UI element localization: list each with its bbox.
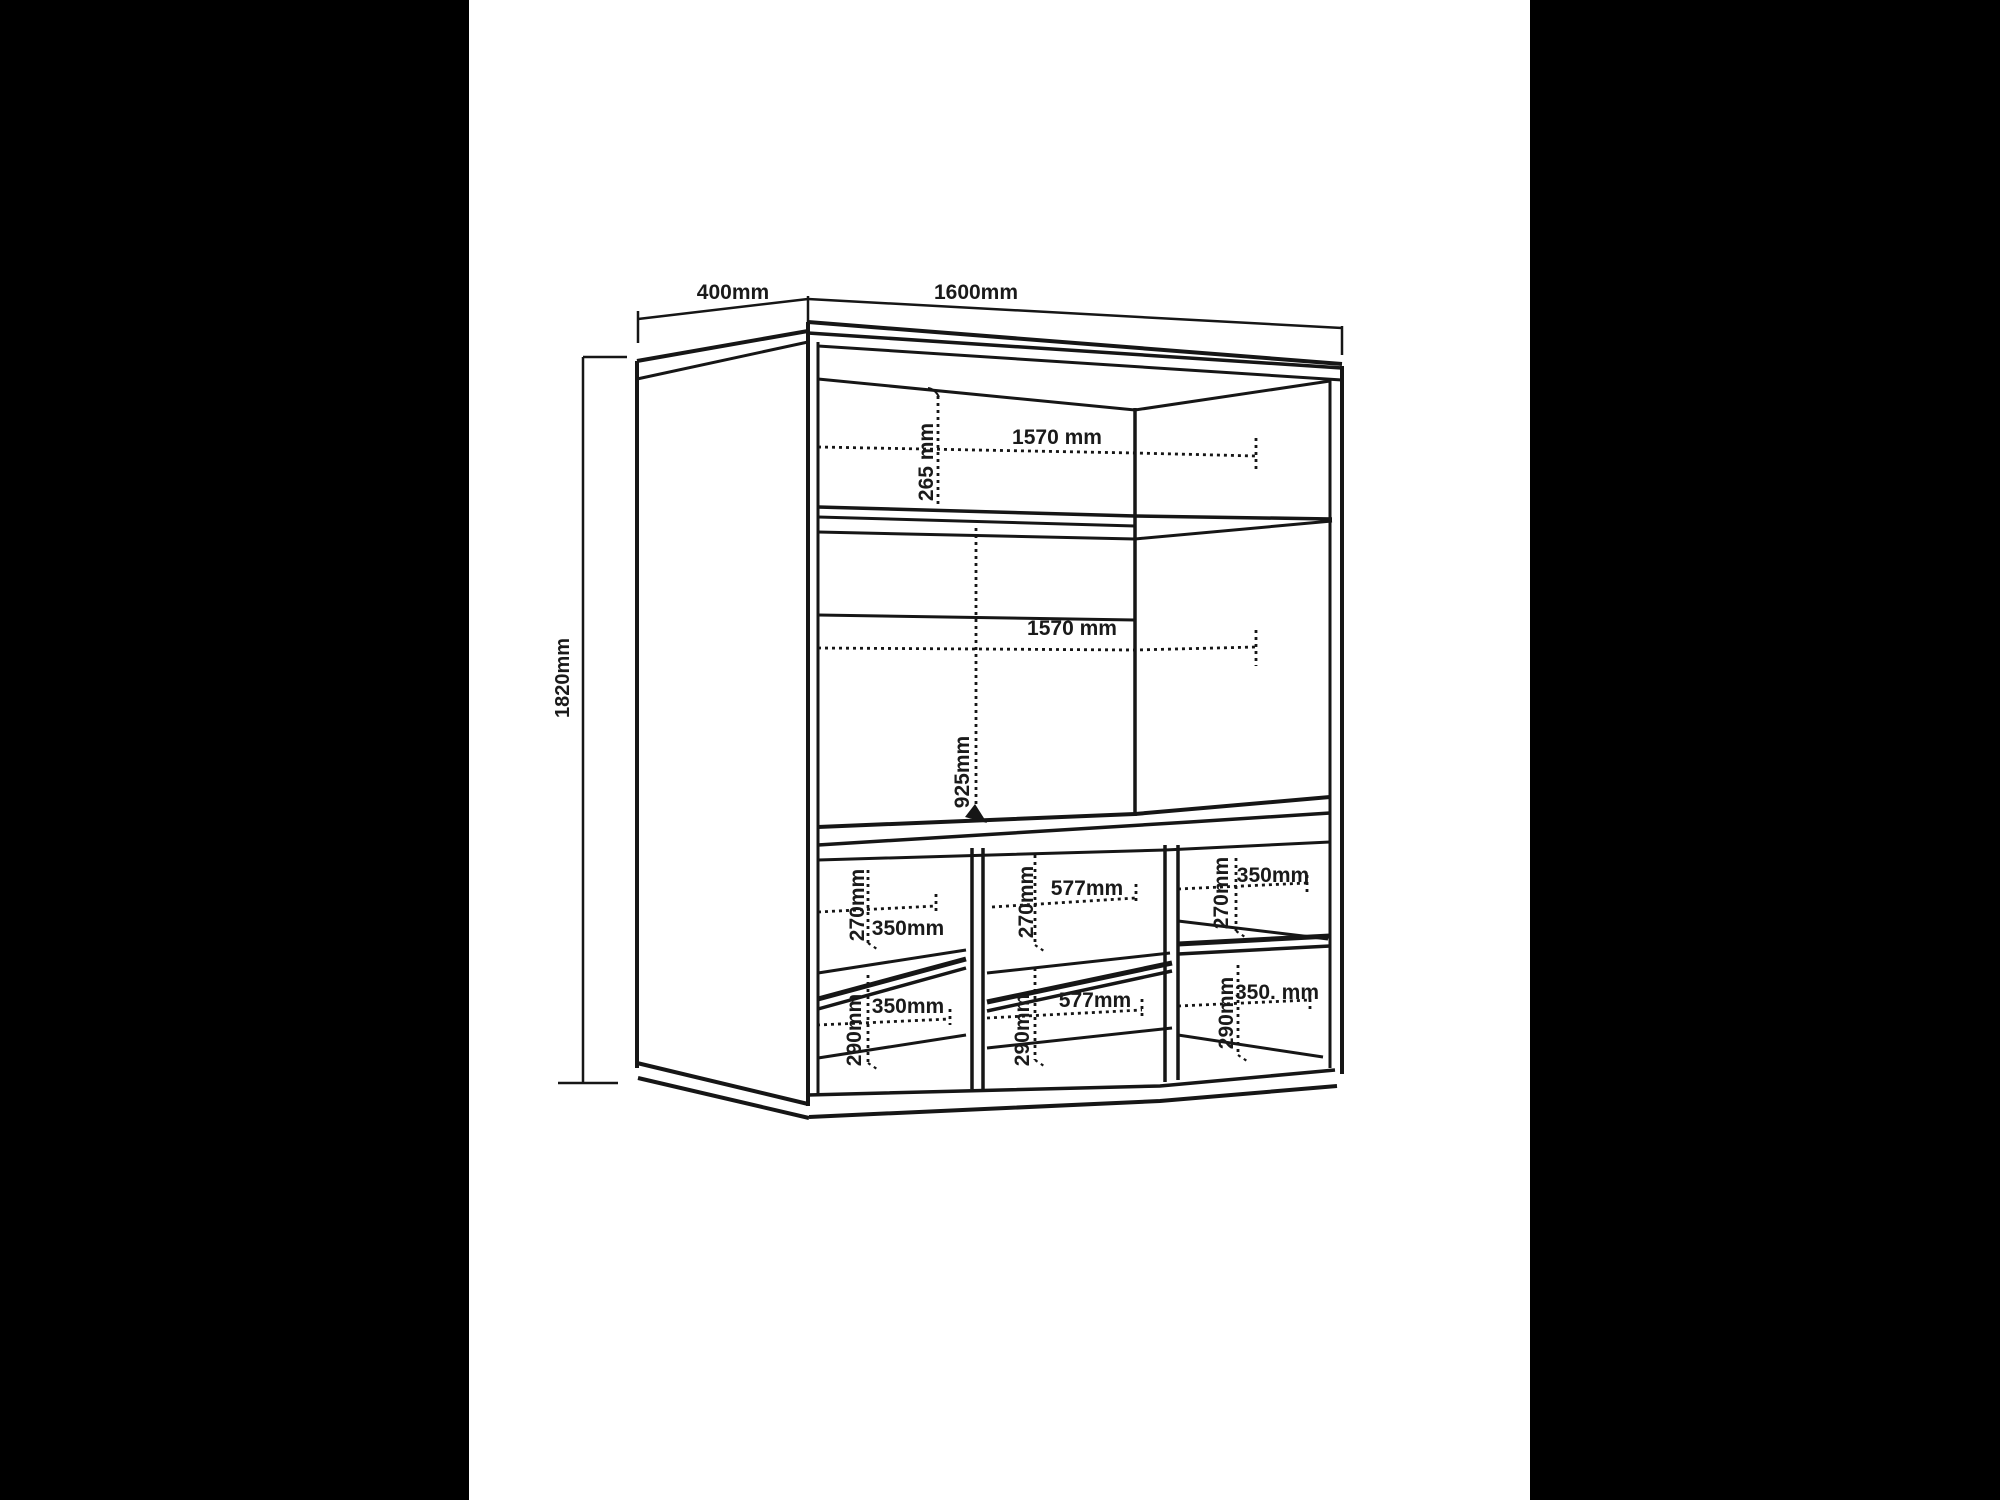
height-dimension-label: 1820mm [552, 638, 574, 718]
cubby-bottom-right-width-label: 350. mm [1235, 981, 1319, 1004]
cubby-bottom-middle-height-label: 290mm [1011, 994, 1034, 1066]
cabinet-dimension-diagram: 400mm 1600mm 1820mm [0, 0, 2000, 1500]
top-shelf-width-label: 1570 mm [1012, 426, 1102, 449]
technical-drawing-page: 400mm 1600mm 1820mm [0, 0, 2000, 1500]
cubby-top-middle-height-label: 270mm [1015, 866, 1038, 938]
cubby-bottom-right-height-label: 290mm [1215, 977, 1238, 1049]
cubby-bottom-left-height-label: 290mm [843, 994, 866, 1066]
cubby-top-left-width-label: 350mm [872, 917, 944, 940]
cubby-top-middle-width-label: 577mm [1051, 877, 1123, 900]
middle-height-label: 925mm [951, 736, 974, 808]
cubby-top-left-height-label: 270mm [846, 869, 869, 941]
width-dimension-label: 1600mm [934, 281, 1018, 304]
drawing-paper [469, 0, 1530, 1500]
cubby-top-right-width-label: 350mm [1237, 864, 1309, 887]
right-letterbox-bar [1530, 0, 2000, 1500]
cubby-top-right-height-label: 270mm [1210, 857, 1233, 929]
cubby-bottom-middle-width-label: 577mm [1059, 989, 1131, 1012]
depth-dimension-label: 400mm [697, 281, 769, 304]
cubby-bottom-left-width-label: 350mm [872, 995, 944, 1018]
middle-width-label: 1570 mm [1027, 617, 1117, 640]
top-shelf-height-label: 265 mm [915, 423, 938, 501]
left-letterbox-bar [0, 0, 469, 1500]
